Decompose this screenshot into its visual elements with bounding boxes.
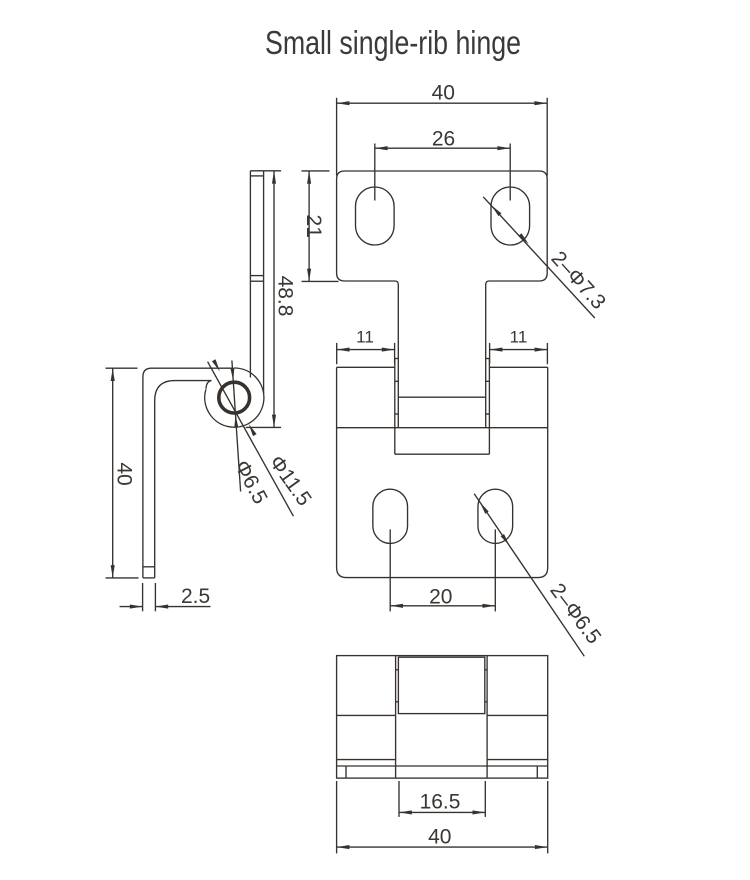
svg-text:11: 11: [356, 328, 374, 347]
svg-text:11: 11: [510, 328, 528, 347]
svg-text:Φ11.5: Φ11.5: [265, 451, 316, 510]
svg-text:40: 40: [432, 81, 455, 104]
svg-text:Small single-rib hinge: Small single-rib hinge: [265, 25, 521, 62]
svg-text:40: 40: [112, 462, 135, 485]
svg-text:2–Φ6.5: 2–Φ6.5: [545, 579, 605, 648]
svg-text:40: 40: [428, 826, 451, 849]
svg-text:2.5: 2.5: [181, 585, 210, 608]
svg-text:26: 26: [432, 128, 455, 151]
svg-text:2–Φ7.3: 2–Φ7.3: [547, 247, 610, 314]
svg-text:20: 20: [429, 585, 452, 608]
svg-text:16.5: 16.5: [420, 790, 461, 813]
svg-text:21: 21: [302, 215, 325, 238]
svg-text:48.8: 48.8: [274, 276, 297, 317]
